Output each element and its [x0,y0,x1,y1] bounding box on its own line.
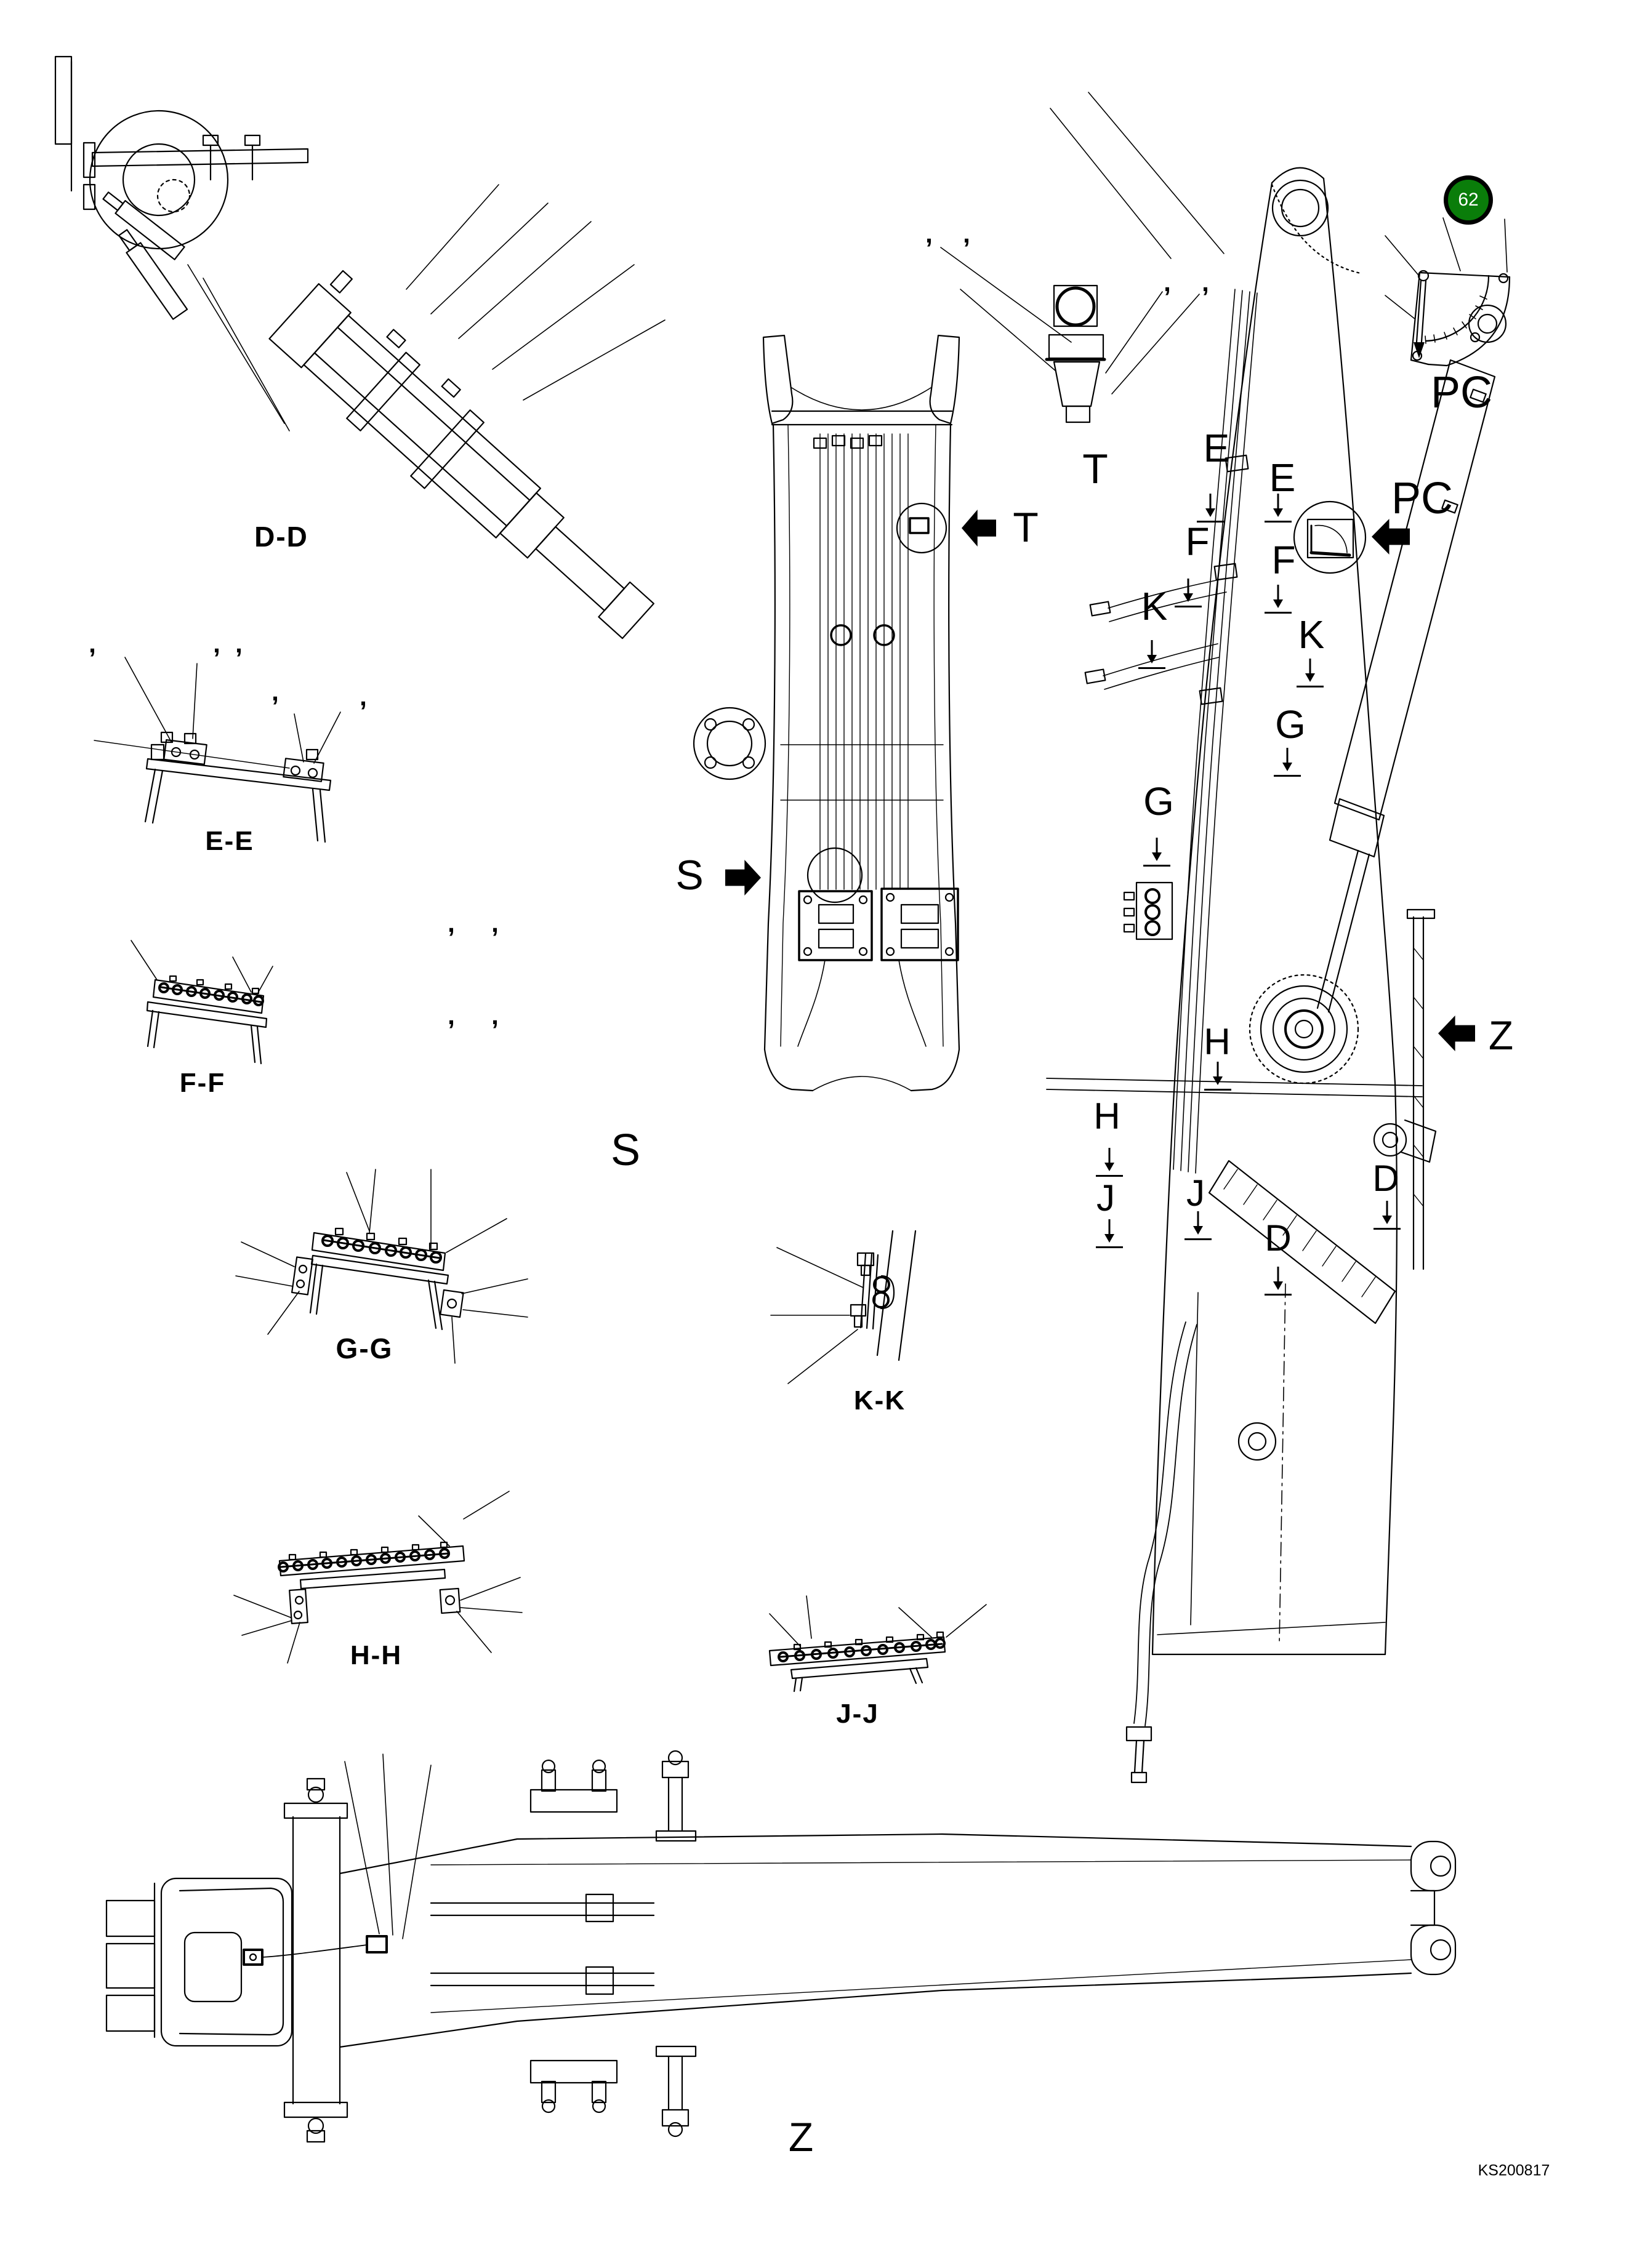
drawing-code-watermark: KS200817 [1478,2162,1550,2180]
section-hh [234,1491,522,1663]
diagram-canvas: D-DE-EF-FG-GH-HJ-JK-K TTSSZZPCPC EEFFKKG… [0,0,1637,2268]
reference-down-arrow-icon [1204,1060,1231,1091]
comma-mark: , [491,1003,499,1028]
callout-letter: F [1185,522,1209,561]
reference-down-arrow-icon [1265,492,1292,523]
view-letter: S [611,1128,640,1172]
reference-down-arrow-icon [1265,583,1292,614]
comma-mark: , [448,1003,455,1028]
section-label: D-D [254,523,308,551]
reference-down-arrow-icon [1374,1200,1401,1230]
comma-mark: , [235,631,243,657]
callout-letter: H [1093,1098,1120,1135]
elbow-fitting-detail [941,247,1199,422]
pin-mount-detail [55,57,308,431]
view-letter: Z [789,2117,813,2157]
reference-down-arrow-icon [1265,1265,1292,1296]
reference-down-arrow-icon [1138,639,1165,669]
callout-letter: J [1096,1180,1115,1217]
section-label: F-F [180,1070,225,1097]
callout-letter: F [1271,540,1295,580]
section-ff [131,940,273,1064]
view-letter: PC [1431,371,1492,415]
reference-down-arrow-icon [1197,492,1224,523]
section-jj [770,1596,986,1691]
callout-letter: G [1143,782,1174,821]
callout-letter: K [1298,615,1325,654]
comma-mark: , [448,910,455,936]
section-dd-cylinder [264,185,765,779]
section-label: J-J [836,1701,879,1728]
view-letter: S [675,854,703,896]
comma-mark: , [1202,270,1209,295]
callout-letter: E [1269,458,1296,497]
callout-letter: K [1141,587,1168,626]
callout-letter: G [1275,705,1306,744]
comma-mark: , [925,221,933,247]
reference-down-arrow-icon [1185,1210,1212,1240]
callout-letter: D [1265,1220,1291,1257]
callout-letter: E [1204,428,1230,468]
callout-letter: H [1204,1024,1230,1060]
comma-mark: , [360,684,367,710]
view-letter: Z [1489,1015,1513,1056]
comma-mark: , [89,631,96,657]
item-number-badge: 62 [1444,175,1493,225]
line-art [0,0,1637,2268]
callout-letter: J [1186,1175,1205,1212]
comma-mark: , [963,221,970,247]
view-letter: T [1013,507,1039,548]
callout-letter: D [1372,1160,1399,1197]
view-letter: PC [1391,476,1453,521]
reference-down-arrow-icon [1143,836,1170,867]
reference-down-arrow-icon [1096,1218,1123,1248]
boom-top-view [763,335,959,1091]
comma-mark: , [213,631,220,657]
comma-mark: , [1164,270,1171,295]
section-label: H-H [350,1642,402,1669]
view-letter: T [1082,448,1108,490]
comma-mark: , [271,679,279,705]
section-label: G-G [336,1334,393,1363]
reference-down-arrow-icon [1297,657,1324,687]
section-label: K-K [854,1387,906,1414]
arm-plan-view [107,1751,1455,2142]
section-kk [771,1231,915,1384]
boom-side-view [1047,92,1506,1782]
section-ee [94,657,340,842]
pc-plate-part [1385,218,1510,366]
reference-down-arrow-icon [1175,577,1202,607]
reference-down-arrow-icon [1096,1147,1123,1177]
reference-down-arrow-icon [1274,747,1301,777]
comma-mark: , [491,910,499,936]
section-label: E-E [205,828,254,855]
